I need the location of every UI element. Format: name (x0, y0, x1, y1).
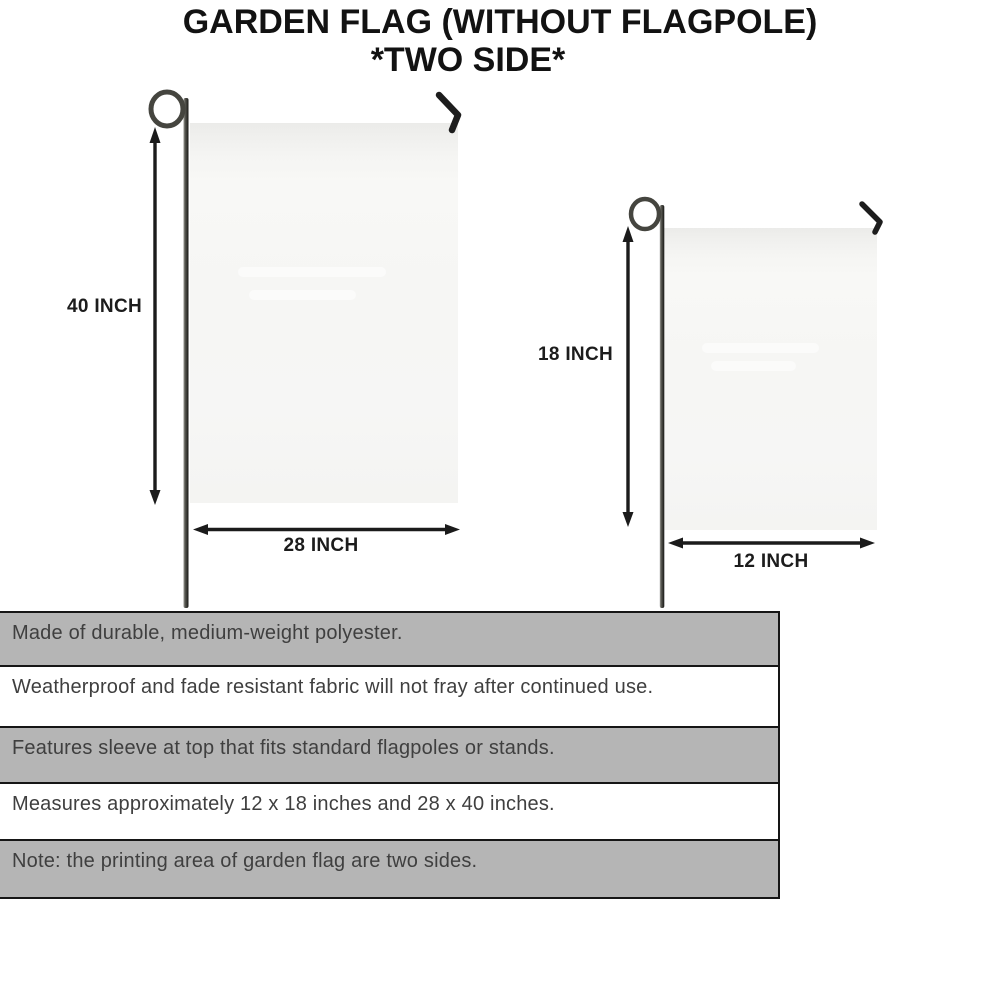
small-flagpole (660, 205, 665, 608)
large-flag-height-arrow (150, 127, 161, 505)
small-flag-height-label: 18 INCH (508, 344, 613, 366)
feature-row-text: Measures approximately 12 x 18 inches an… (12, 793, 555, 815)
small-flag-height-arrow (623, 226, 634, 527)
small-flag-hook-icon (862, 204, 880, 232)
garden-flag-infographic: GARDEN FLAG (WITHOUT FLAGPOLE) *TWO SIDE… (0, 0, 1000, 1000)
small-flag-width-label: 12 INCH (671, 551, 871, 573)
small-flag-width-arrow (668, 538, 875, 549)
feature-row: Made of durable, medium-weight polyester… (0, 613, 778, 665)
large-flag-width-label: 28 INCH (221, 535, 421, 557)
feature-row-text: Weatherproof and fade resistant fabric w… (12, 676, 653, 698)
large-flag-hook-icon (439, 95, 458, 130)
feature-row: Features sleeve at top that fits standar… (0, 728, 778, 782)
feature-row-text: Note: the printing area of garden flag a… (12, 850, 477, 872)
large-flagpole (184, 98, 189, 608)
feature-table: Made of durable, medium-weight polyester… (0, 611, 780, 899)
large-flagpole-loop-icon (151, 92, 183, 126)
feature-row: Weatherproof and fade resistant fabric w… (0, 667, 778, 726)
feature-row-text: Made of durable, medium-weight polyester… (12, 622, 403, 644)
large-flag-height-label: 40 INCH (35, 296, 142, 318)
feature-row-text: Features sleeve at top that fits standar… (12, 737, 555, 759)
small-flagpole-loop-icon (631, 199, 659, 229)
feature-row: Measures approximately 12 x 18 inches an… (0, 784, 778, 839)
feature-row: Note: the printing area of garden flag a… (0, 841, 778, 897)
large-flag-width-arrow (193, 524, 460, 535)
